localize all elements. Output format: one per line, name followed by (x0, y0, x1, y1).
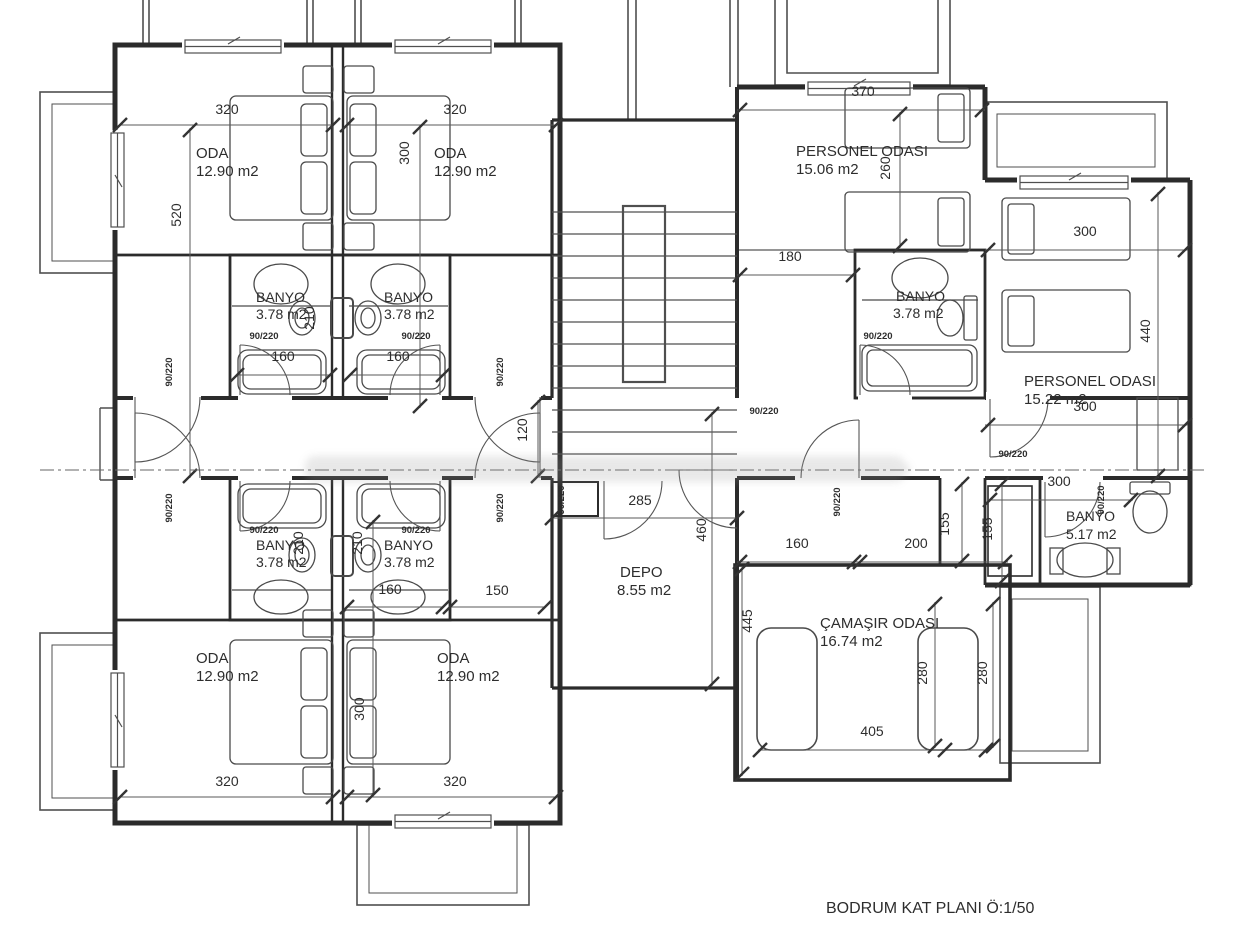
room-oda-br-area: 12.90 m2 (437, 668, 500, 685)
door-label-bath-bl: 90/220 (249, 525, 278, 536)
floor-plan-page: ODA12.90 m2ODA12.90 m2ODA12.90 m2ODA12.9… (0, 0, 1250, 930)
room-camasir-area: 16.74 m2 (820, 633, 883, 650)
dim-200: 200 (904, 535, 928, 551)
room-oda-br-name: ODA (437, 650, 470, 667)
room-oda-tl-name: ODA (196, 145, 229, 162)
dim-160-tr: 160 (386, 348, 410, 364)
room-depo-area: 8.55 m2 (617, 582, 671, 599)
room-banyo-br-name: BANYO (384, 537, 433, 553)
room-banyo5-name: BANYO (1066, 508, 1115, 524)
dim-320-bl: 320 (215, 773, 239, 789)
dim-300-r2: 300 (1073, 398, 1097, 414)
dim-285: 285 (628, 492, 652, 508)
room-banyo-tr-area: 3.78 m2 (384, 306, 435, 322)
dim-300-r1: 300 (1073, 223, 1097, 239)
dim-405: 405 (860, 723, 884, 739)
room-banyo-bl-area: 3.78 m2 (256, 554, 307, 570)
door-label-bath-tr: 90/220 (401, 331, 430, 342)
door-label-vest-tr: 90/220 (495, 357, 506, 386)
room-oda-bl-name: ODA (196, 650, 229, 667)
dim-520: 520 (168, 203, 184, 227)
dim-260: 260 (877, 156, 893, 180)
door-label-stair: 90/220 (749, 406, 778, 417)
dim-280-b: 280 (974, 661, 990, 685)
door-label-vest-br: 90/220 (495, 493, 506, 522)
dim-160-bottom: 160 (378, 581, 402, 597)
room-camasir-name: ÇAMAŞIR ODASI (820, 615, 939, 632)
dim-120: 120 (514, 418, 530, 442)
room-banyo-tl-area: 3.78 m2 (256, 306, 307, 322)
door-label-bath-tl: 90/220 (249, 331, 278, 342)
floor-plan-canvas: ODA12.90 m2ODA12.90 m2ODA12.90 m2ODA12.9… (0, 0, 1250, 930)
walls (115, 45, 1190, 823)
door-label-bath-br: 90/220 (401, 525, 430, 536)
dim-300-r3: 300 (1047, 473, 1071, 489)
dim-155-b: 155 (979, 517, 995, 541)
room-personel1-area: 15.06 m2 (796, 161, 859, 178)
room-banyo-r-name: BANYO (896, 288, 945, 304)
door-label-personel2: 90/220 (998, 449, 1027, 460)
dim-160-right: 160 (785, 535, 809, 551)
room-banyo-tr-name: BANYO (384, 289, 433, 305)
dim-300-top: 300 (396, 141, 412, 165)
room-banyo-br-area: 3.78 m2 (384, 554, 435, 570)
room-banyo-tl-name: BANYO (256, 289, 305, 305)
room-banyo5-area: 5.17 m2 (1066, 526, 1117, 542)
door-label-depo: 90/220 (556, 485, 567, 514)
dim-440: 440 (1137, 319, 1153, 343)
plan-caption: BODRUM KAT PLANI Ö:1/50 (826, 899, 1034, 917)
watermark (305, 456, 910, 482)
room-oda-tr-area: 12.90 m2 (434, 163, 497, 180)
door-label-bath-r: 90/220 (863, 331, 892, 342)
dim-445: 445 (739, 609, 755, 633)
dim-280-a: 280 (914, 661, 930, 685)
door-label-corridor-r: 90/220 (832, 487, 843, 516)
dim-320-tr: 320 (443, 101, 467, 117)
room-banyo-r-area: 3.78 m2 (893, 305, 944, 321)
dim-160-tl: 160 (271, 348, 295, 364)
room-personel2-name: PERSONEL ODASI (1024, 373, 1156, 390)
door-label-banyo5: 90/220 (1096, 485, 1107, 514)
dim-370: 370 (851, 83, 875, 99)
dim-210-top: 210 (301, 306, 317, 330)
dim-460: 460 (693, 518, 709, 542)
room-oda-tr-name: ODA (434, 145, 467, 162)
dim-210-br: 210 (349, 531, 365, 555)
dim-300-bottom: 300 (351, 697, 367, 721)
room-personel1-name: PERSONEL ODASI (796, 143, 928, 160)
door-label-vest-tl: 90/220 (164, 357, 175, 386)
dim-150: 150 (485, 582, 509, 598)
room-oda-bl-area: 12.90 m2 (196, 668, 259, 685)
dim-180: 180 (778, 248, 802, 264)
dim-155-a: 155 (936, 512, 952, 536)
dim-210-bl: 210 (290, 531, 306, 555)
dim-320-tl: 320 (215, 101, 239, 117)
door-swings (135, 345, 1100, 539)
door-label-vest-bl: 90/220 (164, 493, 175, 522)
dim-320-br: 320 (443, 773, 467, 789)
room-oda-tl-area: 12.90 m2 (196, 163, 259, 180)
room-depo-name: DEPO (620, 564, 663, 581)
